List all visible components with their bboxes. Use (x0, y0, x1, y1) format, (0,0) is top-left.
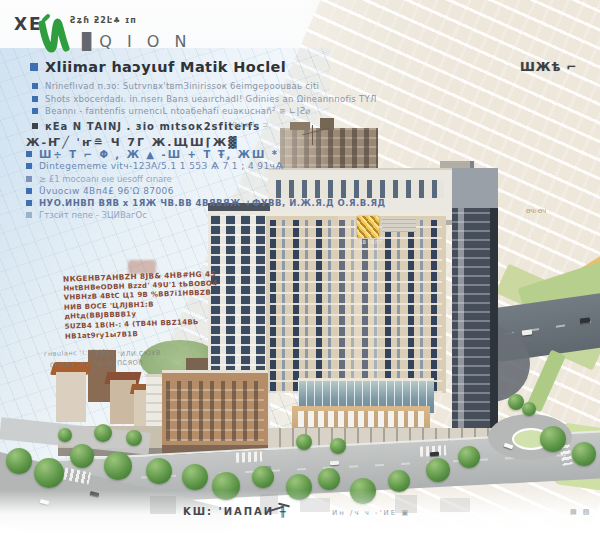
tree (252, 466, 274, 488)
bullet-square (26, 163, 32, 169)
brick-podium-windows (166, 381, 264, 441)
tree (146, 458, 172, 484)
bullet-square (26, 151, 32, 157)
car (330, 461, 339, 465)
right-tower-pier (458, 208, 464, 430)
sketch-silhouette (440, 498, 470, 512)
footer-caption-right: Ин /ч ч -'ИЕ ▣ (332, 509, 410, 517)
tree (6, 448, 32, 474)
map-small-label: ѲЧ≀·ѲЧ (526, 208, 546, 214)
page-title: Xliimar haɔyιuf Matik Hoclel (45, 59, 286, 75)
spec-line: Üvuocıw 4Вп4₤ 96'Ω 87006 (26, 185, 386, 197)
car (430, 452, 439, 456)
tree (104, 452, 132, 480)
spec-line: Гтзсйт пепе - ЗЦИВагОс (26, 209, 386, 221)
tree (458, 446, 480, 468)
bullet-item-strong: кЕа N ΤАINЈ . зio mıtsoк2sfiterfs (32, 120, 377, 133)
right-tower-top (452, 168, 498, 208)
logo-name: ▊Q I O N (82, 32, 191, 51)
bullet-square (26, 212, 32, 218)
crosswalk (236, 451, 262, 462)
footer-caption-far-right: ▤ ▧ (570, 508, 591, 516)
faint-note: Яıtaılı ⊐ (232, 121, 269, 129)
brick-podium (162, 370, 268, 455)
bullet-item: Shots xbocerdadı. in.nserı Banз ueaırcha… (32, 93, 377, 106)
bottom-fade (0, 490, 600, 543)
green-swoosh-logo-icon (38, 8, 74, 54)
tree (94, 424, 112, 442)
bullet-item: Nrineflıvad п.зо: Sutrvnвx'tвmЗinirissoк… (32, 80, 377, 93)
bullet-square (32, 83, 38, 89)
bullet-square (26, 200, 32, 206)
tree (572, 442, 596, 466)
tree (426, 458, 450, 482)
tree (126, 430, 142, 446)
presentation-board: ŁB↑BПT (0, 0, 600, 543)
sign-caption: ŁB↑BПT (354, 239, 388, 245)
bullet-square (26, 188, 32, 194)
bullet-list: Nrineflıvad п.зо: Sutrvnвx'tвmЗinirissoк… (32, 80, 377, 132)
tree (58, 428, 72, 442)
bullet-square (32, 123, 38, 129)
tree (70, 444, 94, 468)
spec-line: Ж-Ҥ╱ ˈҥ≘ Ч 7Г Ж.ЩШ⌈Ж▓ (26, 136, 386, 148)
sketch-silhouette (300, 498, 330, 512)
tree (330, 438, 346, 454)
bullet-square (32, 108, 38, 114)
bullet-square (26, 176, 32, 182)
tree (318, 468, 340, 490)
tree (182, 464, 208, 490)
white-sign-panel (382, 218, 416, 232)
logo-tagline: Ƨʑɦ ƻ2Ŀ♣ ɪᴨ (70, 16, 137, 25)
spec-line: НУО.ИНВП ВЯВ х 1ЯЖ ЧВ.ВВ 4ВЯВЯЖ +ФУВВ, И… (26, 197, 386, 209)
spec-line: Dintegememe vitч-12ЗА/5.1 1 55З Ѧ 7 1 ; … (26, 160, 386, 172)
tree (540, 426, 566, 452)
sketch-silhouette (150, 496, 176, 514)
tree (522, 402, 536, 416)
footer-caption: KШ: 'ИАПАИ ╫ (183, 506, 288, 517)
right-tower-edge (490, 208, 498, 430)
curtain-windows (298, 411, 424, 427)
bullet-item: Beannı - fantenfis urnencıL ntoaбehafi e… (32, 105, 377, 118)
bullet-square (32, 96, 38, 102)
title-row: Xliimar haɔyιuf Matik Hoclel (30, 59, 286, 75)
spec-line: ≥ ₤1 mocoanı eıe uesoff cınare (26, 173, 386, 185)
house (56, 372, 86, 422)
spec-list: Ж-Ҥ╱ ˈҥ≘ Ч 7Г Ж.ЩШ⌈Ж▓ Ш÷ Т ⌐ Φ , Ж ▲ -Ш … (26, 136, 386, 221)
tree (34, 458, 64, 488)
red-annotation-block: NКGЕНВ7АНВZН 8ЈВ& 4НВ#НG 45 НнtВНВeОDВН … (63, 269, 219, 341)
title-bullet-square (30, 63, 38, 71)
spec-line: Ш÷ Т ⌐ Φ , Ж ▲ -Ш + Т Ŧ, ЖШ * (26, 148, 386, 160)
tree (296, 434, 312, 450)
tree (388, 470, 410, 492)
map-district-label: ШЖѣ ⌐ (520, 60, 578, 74)
right-tower (452, 168, 498, 430)
